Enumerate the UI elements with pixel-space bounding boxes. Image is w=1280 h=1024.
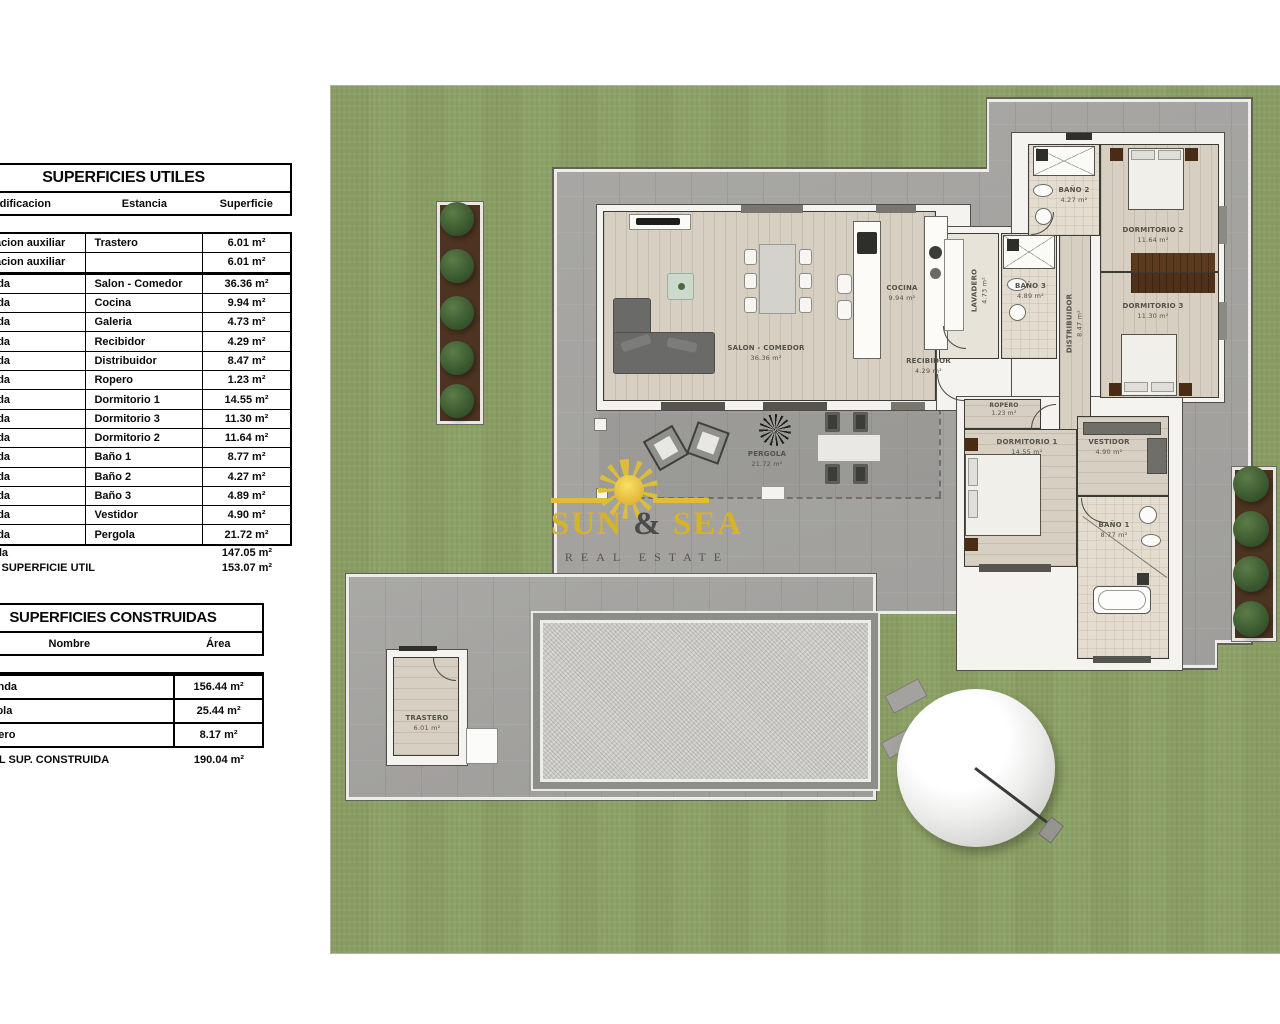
table-row: ViviendaVestidor4.90 m²: [0, 505, 290, 524]
table-cell: Vivienda: [0, 275, 85, 293]
room-label-salon: SALON - COMEDOR36.36 m²: [711, 344, 821, 363]
washbasin: [1139, 506, 1157, 524]
kitchen-sink: [929, 246, 942, 259]
bar-stool: [837, 274, 852, 294]
sofa: [613, 332, 715, 374]
table-cell: 4.29 m²: [202, 332, 290, 350]
room-label-dormitorio3: DORMITORIO 311.30 m²: [1103, 302, 1203, 321]
table-cell: Vestidor: [85, 506, 202, 524]
tree: [440, 341, 474, 375]
table-cell: 9.94 m²: [202, 294, 290, 312]
subtotal-label: Vivienda: [0, 547, 202, 559]
sun-horizon-bar: [653, 498, 709, 503]
superficies-construidas-table: SUPERFICIES CONSTRUIDAS Nombre Área Vivi…: [0, 603, 264, 769]
table-cell: Vivienda: [0, 506, 85, 524]
table-cell: 36.36 m²: [202, 275, 290, 293]
table-cell: 1.23 m²: [202, 371, 290, 389]
spiky-plant: [759, 414, 791, 446]
tree: [440, 384, 474, 418]
pillow: [968, 490, 978, 518]
table-cell: Cocina: [85, 294, 202, 312]
table-cell: [85, 253, 202, 271]
table-cell: Edificacion auxiliar: [0, 234, 85, 252]
room-label-pergola: PERGOLA21.72 m²: [737, 450, 797, 469]
table-cell: 11.64 m²: [202, 429, 290, 447]
table-cell: Pergola: [85, 525, 202, 543]
room-label-recibidor: RECIBIDOR4.29 m²: [891, 357, 966, 376]
wardrobe-vestidor-top: [1083, 422, 1161, 435]
dining-chair: [799, 273, 812, 289]
outdoor-chair: [825, 464, 840, 484]
table-row: Vivienda156.44 m²: [0, 674, 262, 698]
sun-horizon-bar: [551, 498, 607, 503]
room-label-bano2: BAÑO 24.27 m²: [1049, 186, 1099, 205]
table-cell: Edificacion auxiliar: [0, 253, 85, 271]
table-row: Edificacion auxiliar6.01 m²: [0, 252, 290, 273]
pillow: [1151, 382, 1174, 392]
table-cell: Galeria: [85, 313, 202, 331]
total-value: 190.04 m²: [174, 754, 264, 766]
kitchen-sink: [930, 268, 941, 279]
room-label-ropero: ROPERO1.23 m²: [974, 402, 1034, 419]
table-row: Pergola25.44 m²: [0, 698, 262, 722]
window: [979, 564, 1051, 572]
table-cell: Vivienda: [0, 487, 85, 505]
utiles-title: SUPERFICIES UTILES: [0, 163, 292, 193]
table-cell: Vivienda: [0, 525, 85, 543]
pillow: [1131, 150, 1155, 160]
table-cell: 8.47 m²: [202, 352, 290, 370]
table-cell: Dormitorio 2: [85, 429, 202, 447]
nightstand: [1179, 383, 1192, 396]
table-cell: Vivienda: [0, 352, 85, 370]
table-cell: 11.30 m²: [202, 410, 290, 428]
table-cell: 8.17 m²: [173, 724, 262, 746]
trastero-annex: [466, 728, 498, 764]
table-cell: Vivienda: [0, 410, 85, 428]
table-cell: 8.77 m²: [202, 448, 290, 466]
sliding-door: [763, 402, 827, 410]
dining-chair: [799, 297, 812, 313]
table-row: ViviendaDormitorio 211.64 m²: [0, 428, 290, 447]
table-cell: Recibidor: [85, 332, 202, 350]
column-header: Superficie: [203, 198, 290, 210]
table-row: ViviendaDormitorio 114.55 m²: [0, 389, 290, 408]
window: [891, 402, 925, 410]
wardrobe-vestidor-right: [1147, 438, 1167, 474]
nightstand: [965, 538, 978, 551]
plant-icon: [678, 283, 685, 290]
construidas-header: Nombre Área: [0, 631, 264, 656]
wardrobe-dormitorio2: [1131, 253, 1215, 272]
tree: [440, 296, 474, 330]
tree: [1233, 601, 1269, 637]
pool: [533, 613, 878, 789]
table-row: ViviendaSalon - Comedor36.36 m²: [0, 274, 290, 293]
table-cell: Vivienda: [0, 429, 85, 447]
window: [876, 205, 916, 213]
nightstand: [1110, 148, 1123, 161]
table-cell: Ropero: [85, 371, 202, 389]
tree: [440, 202, 474, 236]
tree: [1233, 466, 1269, 502]
column-header: Área: [175, 638, 262, 650]
outdoor-chair: [853, 464, 868, 484]
superficies-utiles-table: SUPERFICIES UTILES Edificacion Estancia …: [0, 163, 292, 576]
table-cell: 156.44 m²: [173, 676, 262, 698]
doormat: [761, 486, 785, 500]
table-cell: Trastero: [85, 234, 202, 252]
room-label-trastero: TRASTERO6.01 m²: [397, 714, 457, 733]
table-cell: Vivienda: [0, 371, 85, 389]
column-header: Nombre: [0, 638, 175, 650]
table-row: ViviendaGaleria4.73 m²: [0, 312, 290, 331]
table-cell: 4.27 m²: [202, 468, 290, 486]
table-cell: Vivienda: [0, 448, 85, 466]
table-cell: Vivienda: [0, 468, 85, 486]
table-cell: Distribuidor: [85, 352, 202, 370]
window: [1093, 656, 1151, 663]
sun-core-icon: [614, 475, 644, 505]
construidas-title: SUPERFICIES CONSTRUIDAS: [0, 603, 264, 633]
column-header: Edificacion: [0, 198, 86, 210]
toilet: [1141, 534, 1161, 547]
table-row: ViviendaPergola21.72 m²: [0, 524, 290, 543]
subtotal-value: 147.05 m²: [202, 547, 292, 559]
table-row: Edificacion auxiliarTrastero6.01 m²: [0, 234, 290, 252]
table-cell: Pergola: [0, 700, 173, 722]
table-row: ViviendaDistribuidor8.47 m²: [0, 351, 290, 370]
pillow: [1158, 150, 1181, 160]
room-label-dormitorio1: DORMITORIO 114.55 m²: [977, 438, 1077, 457]
bathtub-inner: [1098, 590, 1146, 610]
watermark-title: SUN & SEA: [517, 506, 777, 543]
total-label: TOTAL SUP. CONSTRUIDA: [0, 754, 174, 766]
trastero-window: [399, 646, 437, 651]
bar-stool: [837, 300, 852, 320]
table-cell: Dormitorio 3: [85, 410, 202, 428]
table-cell: 4.89 m²: [202, 487, 290, 505]
table-cell: Baño 1: [85, 448, 202, 466]
table-row: ViviendaBaño 34.89 m²: [0, 486, 290, 505]
table-row: ViviendaCocina9.94 m²: [0, 293, 290, 312]
utiles-body: Edificacion auxiliarTrastero6.01 m²Edifi…: [0, 232, 292, 546]
pergola-dashed-line: [939, 398, 941, 497]
watermark-subtitle: REAL ESTATE: [517, 550, 777, 565]
table-cell: Vivienda: [0, 676, 173, 698]
pillow: [1124, 382, 1148, 392]
stove: [857, 232, 877, 254]
tree: [440, 249, 474, 283]
table-cell: 6.01 m²: [202, 234, 290, 252]
table-row: Trastero8.17 m²: [0, 722, 262, 746]
room-label-bano1: BAÑO 18.77 m²: [1089, 521, 1139, 540]
table-cell: 4.90 m²: [202, 506, 290, 524]
utiles-header: Edificacion Estancia Superficie: [0, 191, 292, 216]
table-cell: Baño 2: [85, 468, 202, 486]
window: [1066, 133, 1092, 140]
shower-drain: [1007, 239, 1019, 251]
floor-plan: SALON - COMEDOR36.36 m² COCINA9.94 m² RE…: [330, 85, 1280, 954]
total-value: 153.07 m²: [202, 562, 292, 574]
room-label-vestidor: VESTIDOR4.90 m²: [1079, 438, 1139, 457]
window: [741, 205, 803, 213]
outdoor-chair: [825, 412, 840, 432]
tv: [636, 218, 680, 225]
column-header: Estancia: [86, 198, 202, 210]
table-cell: Dormitorio 1: [85, 390, 202, 408]
table-row: ViviendaDormitorio 311.30 m²: [0, 409, 290, 428]
table-cell: Vivienda: [0, 390, 85, 408]
shower-drain: [1137, 573, 1149, 585]
dining-chair: [744, 249, 757, 265]
utiles-subtotal-row: Vivienda 147.05 m²: [0, 546, 292, 561]
table-cell: 25.44 m²: [173, 700, 262, 722]
wardrobe-dormitorio3: [1131, 273, 1215, 293]
table-cell: Vivienda: [0, 313, 85, 331]
outdoor-table: [817, 434, 881, 462]
window: [1219, 302, 1227, 340]
sun-lounger: [885, 678, 928, 713]
table-cell: 21.72 m²: [202, 525, 290, 543]
table-cell: Salon - Comedor: [85, 275, 202, 293]
shower-drain: [1036, 149, 1048, 161]
table-cell: 4.73 m²: [202, 313, 290, 331]
room-label-bano3: BAÑO 34.89 m²: [1003, 282, 1058, 301]
sliding-door: [661, 402, 725, 410]
tree: [1233, 511, 1269, 547]
table-cell: 6.01 m²: [202, 253, 290, 271]
table-cell: Vivienda: [0, 332, 85, 350]
construidas-body: Vivienda156.44 m²Pergola25.44 m²Trastero…: [0, 672, 264, 748]
outdoor-chair: [853, 412, 868, 432]
utiles-total-row: TOTAL SUPERFICIE UTIL 153.07 m²: [0, 561, 292, 576]
window: [1219, 206, 1227, 244]
room-label-cocina: COCINA9.94 m²: [871, 284, 933, 303]
table-row: ViviendaBaño 24.27 m²: [0, 467, 290, 486]
table-cell: 14.55 m²: [202, 390, 290, 408]
pergola-post: [594, 418, 607, 431]
dining-chair: [799, 249, 812, 265]
room-label-lavadero: LAVADERO4.73 m²: [971, 245, 990, 335]
table-cell: Trastero: [0, 724, 173, 746]
page: SUPERFICIES UTILES Edificacion Estancia …: [0, 0, 1280, 1024]
laundry-counter: [944, 239, 964, 331]
room-label-dormitorio2: DORMITORIO 211.64 m²: [1103, 226, 1203, 245]
table-row: ViviendaRopero1.23 m²: [0, 370, 290, 389]
pillow: [968, 458, 978, 486]
table-cell: Vivienda: [0, 294, 85, 312]
room-label-distribuidor: DISTRIBUIDOR8.47 m²: [1066, 278, 1085, 368]
dining-table: [759, 244, 796, 314]
table-cell: Baño 3: [85, 487, 202, 505]
nightstand: [1185, 148, 1198, 161]
total-label: TOTAL SUPERFICIE UTIL: [0, 562, 202, 574]
dining-chair: [744, 297, 757, 313]
tree: [1233, 556, 1269, 592]
construidas-total-row: TOTAL SUP. CONSTRUIDA 190.04 m²: [0, 751, 264, 769]
washbasin: [1009, 304, 1026, 321]
table-row: ViviendaRecibidor4.29 m²: [0, 331, 290, 350]
table-row: ViviendaBaño 18.77 m²: [0, 447, 290, 466]
dining-chair: [744, 273, 757, 289]
